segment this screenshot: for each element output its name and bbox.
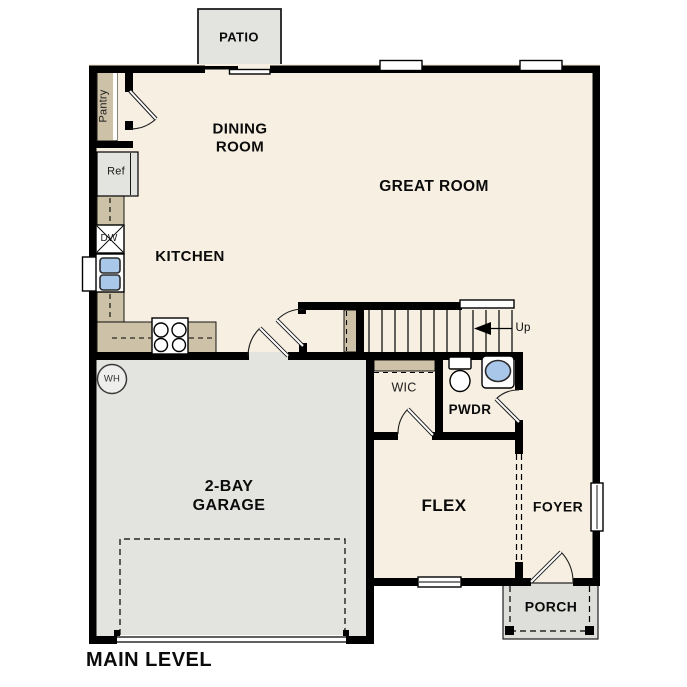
dining-line1: DINING: [213, 120, 268, 138]
room-label-porch: PORCH: [525, 599, 578, 616]
garage-line2: GARAGE: [193, 497, 266, 516]
wic-shelf: [374, 360, 435, 371]
room-label-great-room: GREAT ROOM: [379, 178, 489, 196]
room-label-foyer: FOYER: [533, 499, 583, 516]
garage-door-jamb: [343, 630, 349, 636]
stairs-up-label: Up: [515, 322, 530, 336]
fixture-label-water-heater: WH: [104, 373, 120, 384]
room-label-kitchen: KITCHEN: [155, 248, 224, 266]
powder-sink: [482, 356, 514, 388]
plan-title: MAIN LEVEL: [86, 649, 212, 673]
pantry-shelf-edge: [113, 72, 117, 140]
garage-line1: 2-BAY: [193, 478, 266, 497]
room-label-powder: PWDR: [449, 402, 492, 418]
floor-plan: PATIO DINING ROOM GREAT ROOM KITCHEN 2-B…: [0, 0, 687, 687]
room-label-garage: 2-BAY GARAGE: [193, 478, 266, 516]
porch-post: [505, 626, 514, 635]
garage-door-jamb: [114, 630, 120, 636]
kitchen-window: [83, 257, 97, 291]
room-label-dining: DINING ROOM: [213, 120, 268, 155]
porch-post: [585, 626, 594, 635]
fixture-label-refrigerator: Ref: [107, 166, 125, 179]
dining-line2: ROOM: [213, 138, 268, 156]
fixture-label-pantry: Pantry: [98, 90, 111, 123]
slider-moving-panel: [230, 70, 271, 75]
fixture-label-dishwasher: DW: [100, 233, 117, 245]
stove: [152, 318, 188, 354]
stair-handrail: [460, 300, 514, 308]
kitchen-sink: [96, 254, 124, 292]
great-room-window: [520, 61, 562, 71]
room-label-flex: FLEX: [421, 496, 466, 516]
room-label-patio: PATIO: [219, 29, 259, 44]
great-room-window: [380, 61, 422, 71]
toilet: [449, 357, 471, 392]
room-label-wic: WIC: [392, 381, 417, 396]
